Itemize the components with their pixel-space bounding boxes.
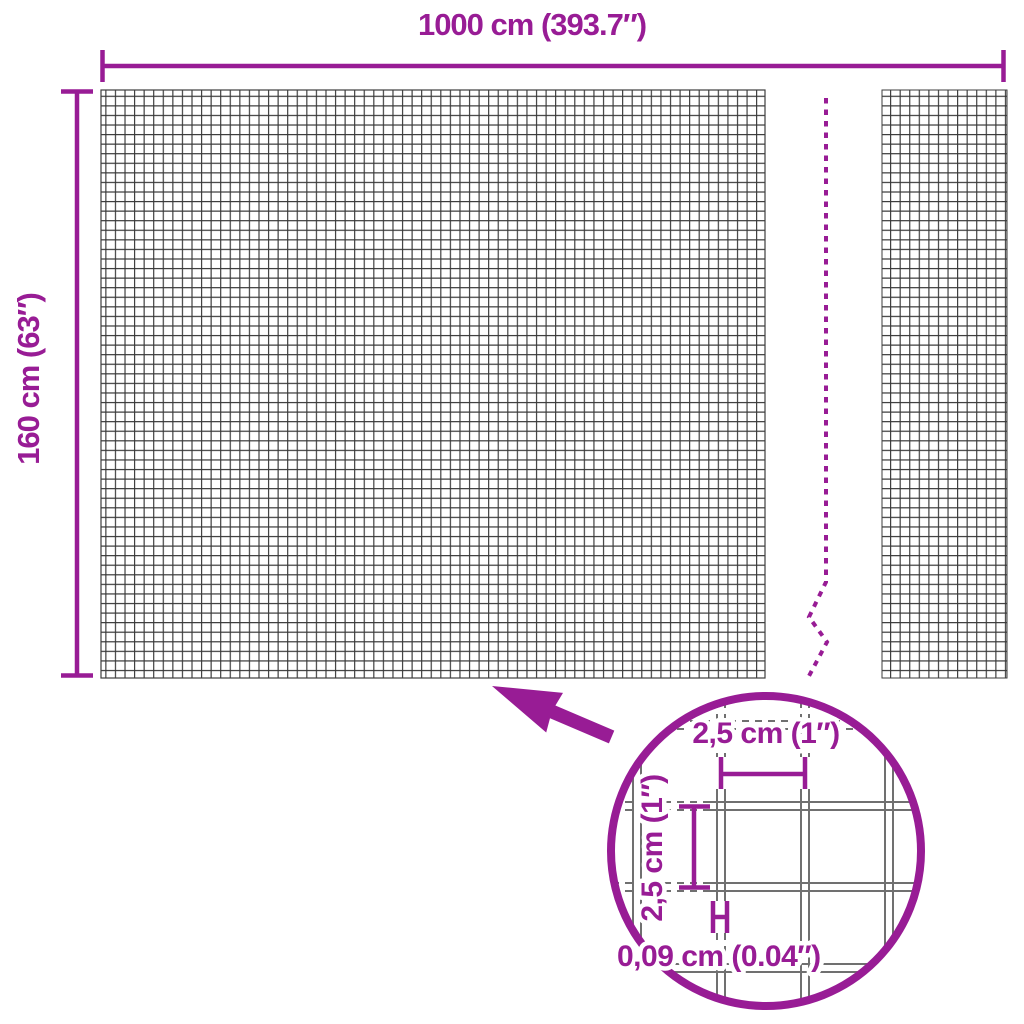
svg-text:2,5 cm (1″): 2,5 cm (1″) [692, 717, 839, 750]
svg-text:160 cm (63″): 160 cm (63″) [11, 293, 46, 465]
svg-text:0,09 cm (0.04″): 0,09 cm (0.04″) [617, 940, 821, 973]
svg-text:2,5 cm (1″): 2,5 cm (1″) [636, 774, 669, 921]
svg-text:1000 cm (393.7″): 1000 cm (393.7″) [418, 7, 646, 42]
